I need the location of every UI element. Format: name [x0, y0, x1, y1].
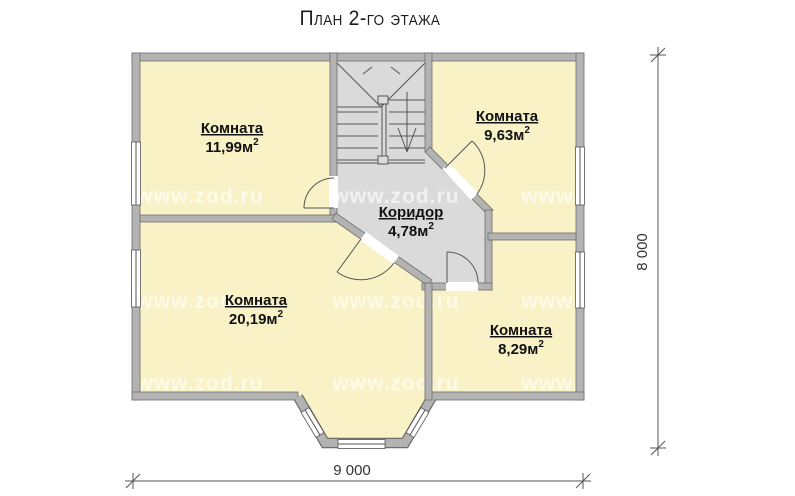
wall-outer-right	[576, 53, 584, 400]
window-left-top	[132, 142, 141, 205]
wall-room1-room3	[140, 215, 335, 222]
stair-newel-post-bottom	[378, 156, 388, 164]
room-area: 8,29м2	[498, 339, 544, 358]
room-name: Комната	[476, 108, 539, 125]
watermark-text: www.zod.ru	[135, 372, 263, 395]
window-right-top	[576, 147, 585, 205]
wall-outer-left	[132, 53, 140, 400]
wall-outer-bottom-right	[430, 392, 584, 400]
watermark-text: www.zod.ru	[331, 372, 459, 395]
window-right-bottom	[576, 252, 585, 308]
dimension-horizontal-label: 9 000	[333, 462, 371, 479]
wall-stairwell-right	[425, 53, 432, 152]
room-name: Комната	[225, 292, 288, 309]
wall-room3-room4	[425, 283, 432, 400]
room-area: 9,63м2	[484, 125, 530, 144]
room-area: 20,19м2	[229, 309, 284, 328]
watermark-text: www.zod.ru	[135, 185, 263, 208]
wall-corridor-right	[485, 210, 492, 290]
watermark-text: www.zod.ru	[331, 290, 459, 313]
wall-room2-room4	[488, 233, 576, 240]
floor-plan-canvas: План 2-го этажа www.zod.ru www.zod.ru ww…	[0, 0, 795, 496]
room-area: 11,99м2	[205, 137, 259, 156]
room-name: Комната	[490, 322, 553, 339]
stair-newel-post-top	[378, 96, 388, 104]
wall-outer-bottom-left	[132, 392, 298, 400]
room-name: Коридор	[379, 204, 444, 221]
room-area: 4,78м2	[388, 221, 434, 240]
plan-title: План 2-го этажа	[300, 7, 441, 30]
floor-plan-page: План 2-го этажа www.zod.ru www.zod.ru ww…	[0, 0, 795, 496]
dimension-vertical-label: 8 000	[634, 233, 651, 271]
wall-outer-top	[132, 53, 584, 61]
window-left-bottom	[132, 250, 141, 307]
window-bay-bottom	[338, 440, 385, 449]
room-name: Комната	[201, 120, 264, 137]
